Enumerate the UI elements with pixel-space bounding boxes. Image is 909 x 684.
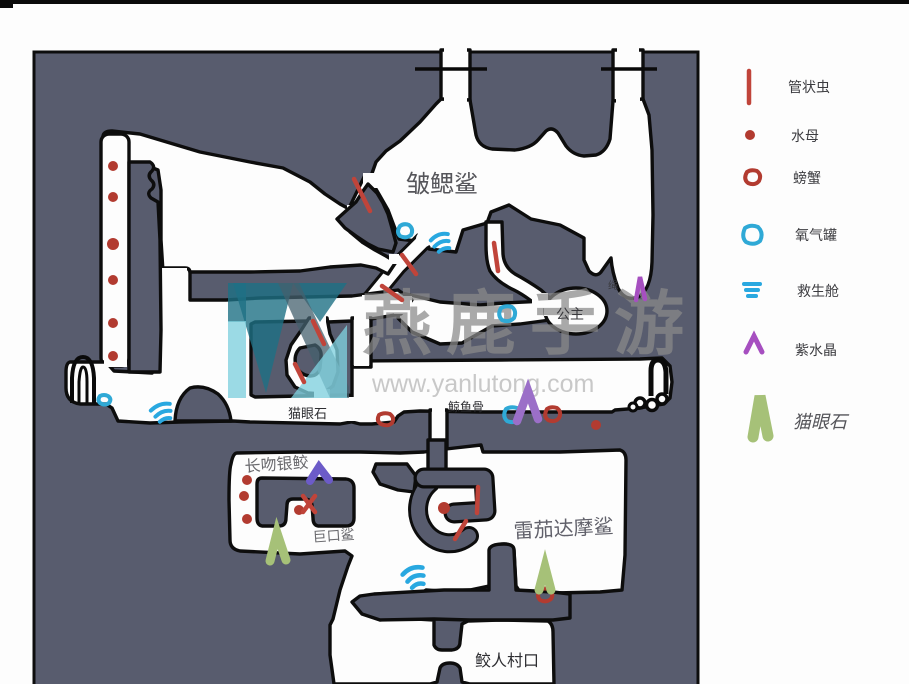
svg-text:巨口鲨: 巨口鲨	[312, 526, 355, 545]
svg-text:氧气罐: 氧气罐	[795, 227, 837, 243]
svg-text:管状虫: 管状虫	[788, 79, 830, 95]
svg-text:绳: 绳	[608, 279, 618, 292]
svg-text:燕鹿手游: 燕鹿手游	[362, 285, 698, 363]
svg-text:水母: 水母	[791, 128, 819, 144]
svg-text:螃蟹: 螃蟹	[793, 170, 821, 186]
svg-text:猫眼石: 猫眼石	[288, 406, 327, 421]
svg-text:救生舱: 救生舱	[797, 283, 839, 299]
svg-text:皱鳃鲨: 皱鳃鲨	[406, 171, 478, 198]
svg-text:公主: 公主	[556, 306, 584, 322]
svg-text:www.yanlutong.com: www.yanlutong.com	[371, 370, 594, 398]
svg-text:鲸鱼骨: 鲸鱼骨	[448, 399, 484, 414]
svg-text:紫水晶: 紫水晶	[795, 342, 837, 358]
svg-text:鲛人村口: 鲛人村口	[475, 652, 539, 670]
svg-text:猫眼石: 猫眼石	[793, 412, 850, 432]
